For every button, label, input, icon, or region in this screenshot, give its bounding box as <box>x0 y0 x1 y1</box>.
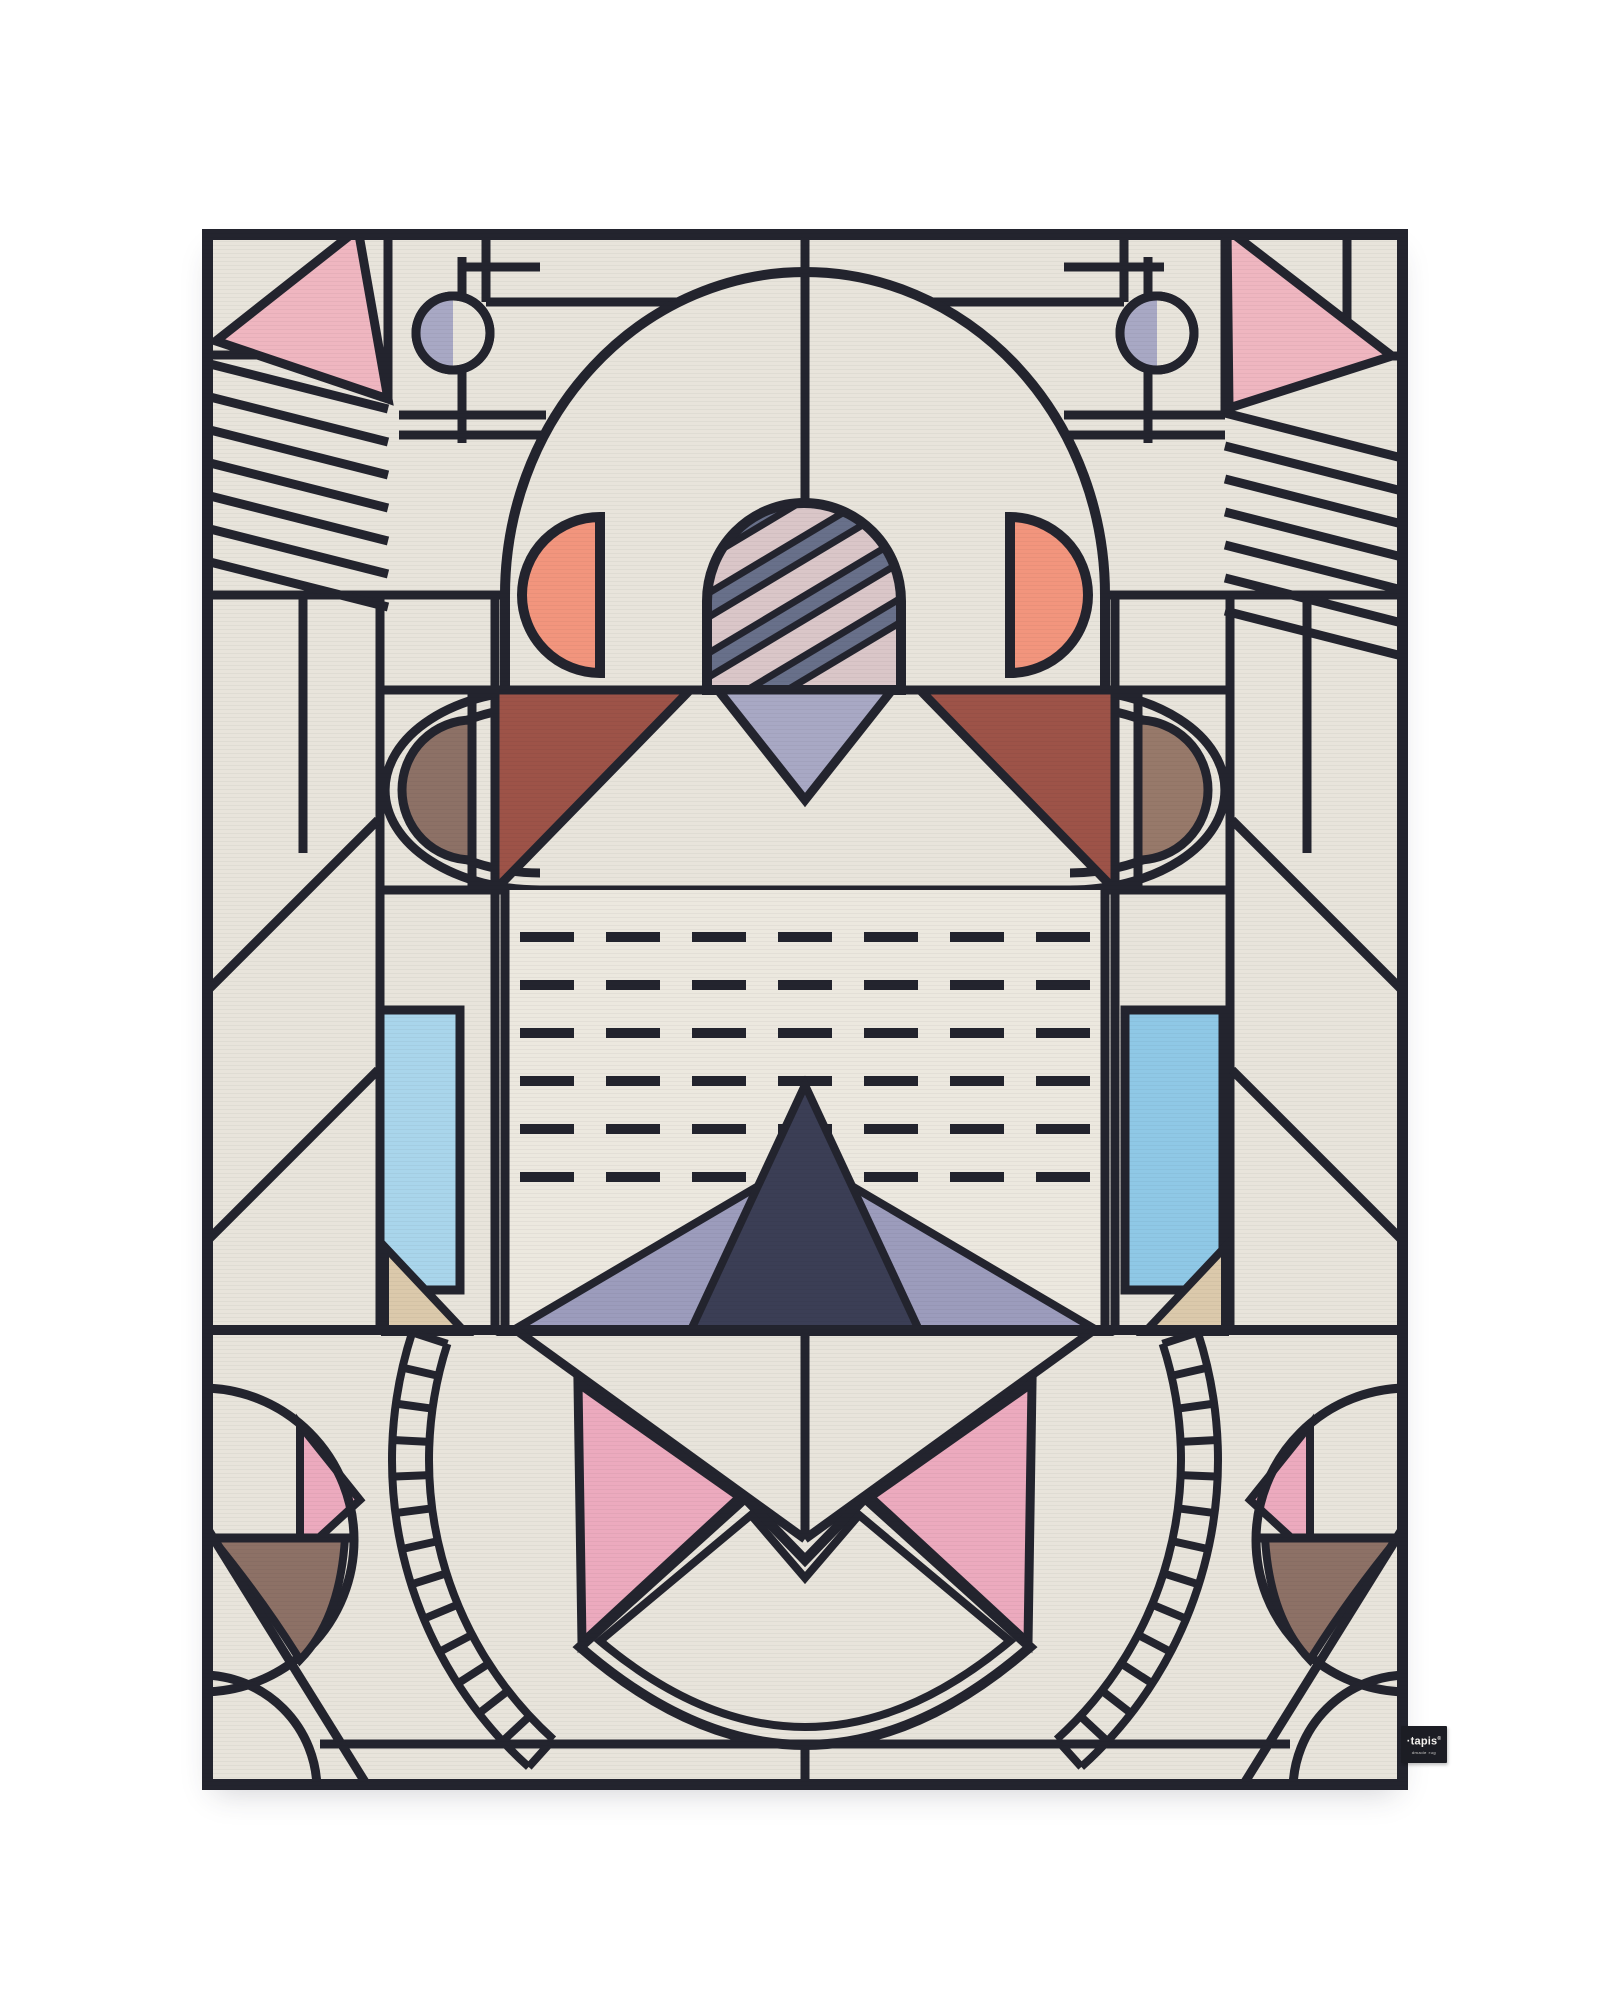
brand-label-tag: ·tapis® dmade rug <box>1401 1726 1447 1763</box>
rug-image: ·tapis® dmade rug <box>202 229 1408 1790</box>
brand-label-subtext: dmade rug <box>1412 1750 1437 1755</box>
rug-artwork <box>202 229 1408 1790</box>
brand-label-text: ·tapis® <box>1407 1734 1441 1748</box>
photo-stage: ·tapis® dmade rug <box>0 0 1600 2000</box>
registered-mark: ® <box>1437 1736 1441 1742</box>
